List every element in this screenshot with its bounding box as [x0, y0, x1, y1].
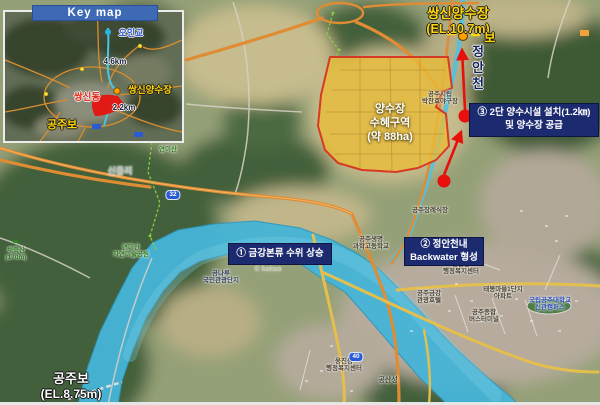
map-label: 공주금강관광호텔 — [417, 290, 441, 305]
route-shield: 40 — [348, 352, 363, 362]
map-label: 태봉마을1단지아파트 — [483, 286, 523, 301]
gongju-weir-label: 공주보 (EL.8.75m) — [18, 368, 124, 401]
pump-station-name: 쌍신양수장 — [398, 2, 518, 22]
map-label: 공산성 — [378, 377, 397, 385]
map-label: © kakao — [255, 266, 282, 274]
map-label: 공주장례식장 — [412, 207, 448, 214]
key-map-title: Key map — [32, 5, 158, 21]
map-label: 연미산 — [159, 146, 177, 153]
callout-1-water-level: ① 금강본류 수위 상승 — [228, 243, 332, 265]
pump-station-label: 쌍신양수장 (EL.10.7m) — [398, 2, 518, 36]
key-map-graphic — [5, 12, 182, 141]
callout-3-pumping-facility: ③ 2단 양수시설 설치(1.2㎞) 및 양수장 공급 — [469, 103, 599, 137]
pump-point-lower — [438, 175, 451, 188]
map-label: 공주종합버스터미널 — [469, 309, 499, 324]
callout-2-backwater: ② 정안천내 Backwater 형성 — [404, 237, 484, 266]
map-label: 신웅리 — [108, 166, 133, 176]
map-label: 국립공주대학교신관캠퍼스 — [529, 297, 571, 312]
key-map-label: 오인교 — [119, 26, 144, 39]
map-slide: Key map 오인교4.6km쌍신동쌍신양수장2.2km공주보 신웅리연미산연… — [0, 0, 600, 405]
key-map-label: 쌍신동 — [74, 89, 100, 103]
jeongan-stream-label: 정 안 천 — [470, 44, 486, 92]
map-label: 채죽산(170m) — [6, 247, 27, 262]
key-map-label: 공주보 — [47, 116, 77, 132]
key-map-label: 4.6km — [104, 57, 127, 66]
key-map-inset — [3, 10, 184, 143]
key-map-label: 2.2km — [113, 103, 136, 112]
map-label: 곰나루국민관광단지 — [203, 270, 239, 285]
inset-oingyo-dot — [105, 29, 111, 35]
route-shield: 32 — [165, 190, 180, 200]
inset-pump-dot — [114, 88, 120, 94]
map-label: 연미산자연미술공원 — [113, 244, 149, 259]
map-label: 공주생명과학고등학교 — [353, 236, 389, 251]
key-map-label: 쌍신양수장 — [128, 82, 172, 96]
pump-station-elevation: (EL.10.7m) — [398, 22, 518, 36]
benefit-area-label: 양수장 수혜구역 (약 88ha) — [330, 102, 450, 144]
